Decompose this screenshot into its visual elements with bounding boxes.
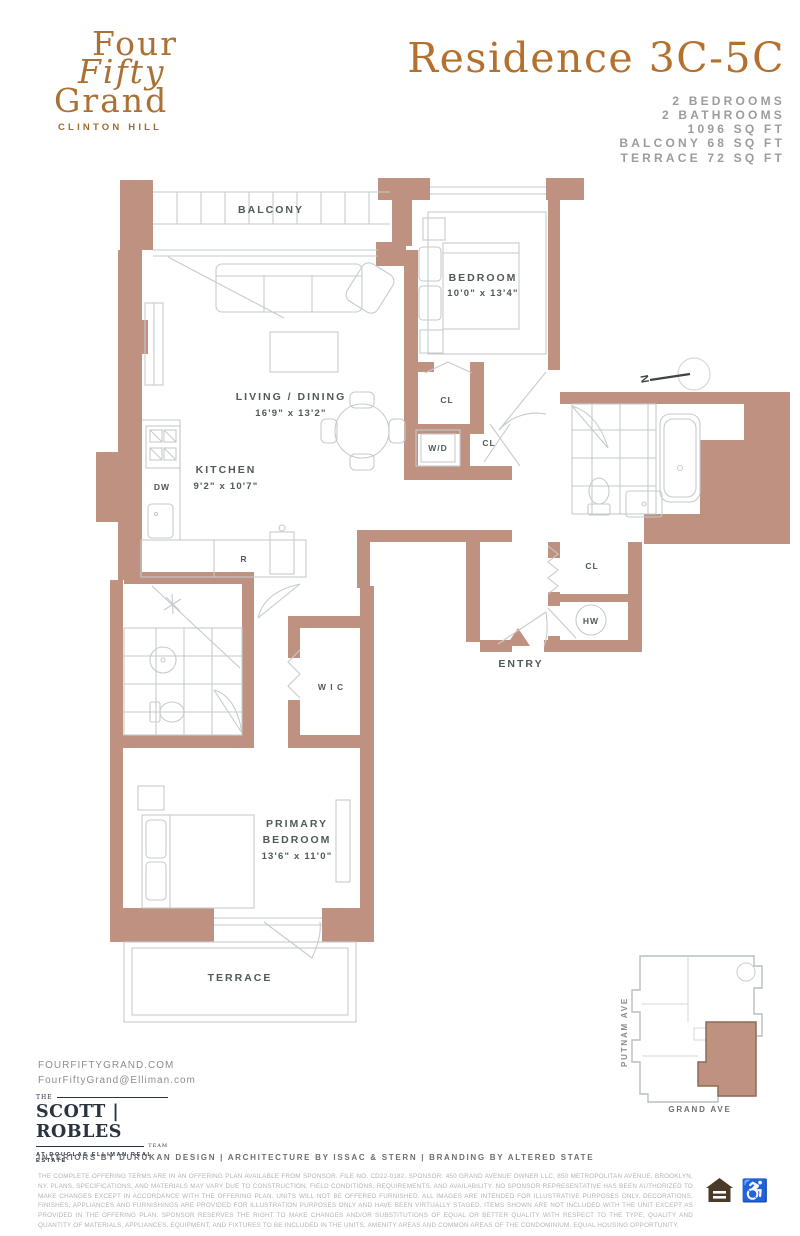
equal-housing-icon (706, 1178, 733, 1203)
label-closet-2: CL (482, 438, 495, 448)
label-primary-1: PRIMARY (266, 818, 328, 830)
credits-line: INTERIORS BY DURUKAN DESIGN | ARCHITECTU… (38, 1153, 594, 1162)
contact-block: FOURFIFTYGRAND.COM FourFiftyGrand@Ellima… (38, 1058, 196, 1088)
website-link[interactable]: FOURFIFTYGRAND.COM (38, 1060, 174, 1071)
email-link[interactable]: FourFiftyGrand@Elliman.com (38, 1075, 196, 1086)
label-kitchen: KITCHEN (196, 464, 257, 476)
accessibility-icon: ♿ (741, 1180, 768, 1202)
team-rule-bottom (36, 1146, 144, 1147)
dims-living: 16'9" x 13'2" (255, 408, 326, 419)
label-living: LIVING / DINING (236, 391, 347, 403)
team-the: THE (36, 1094, 53, 1101)
team-name: SCOTT | ROBLES (36, 1102, 168, 1142)
north-arrow: N (637, 358, 710, 390)
footer-icons: ♿ (706, 1178, 768, 1203)
floorplan-drawing: N BALCONY BEDROOM 10'0" x 13'4" LIVING /… (0, 0, 800, 1236)
label-terrace: TERRACE (208, 972, 273, 984)
label-hot-water: HW (583, 616, 599, 626)
label-balcony: BALCONY (238, 204, 304, 216)
street-putnam: PUTNAM AVE (620, 997, 629, 1067)
legal-disclaimer: THE COMPLETE OFFERING TERMS ARE IN AN OF… (38, 1172, 693, 1231)
team-rule-top (57, 1097, 168, 1098)
dims-kitchen: 9'2" x 10'7" (194, 481, 259, 492)
room-labels: BALCONY BEDROOM 10'0" x 13'4" LIVING / D… (154, 204, 599, 984)
dims-primary: 13'6" x 11'0" (262, 851, 333, 862)
team-team: TEAM (148, 1143, 168, 1149)
label-closet-1: CL (440, 395, 453, 405)
street-grand: GRAND AVE (668, 1105, 731, 1114)
label-closet-3: CL (585, 561, 598, 571)
key-plan-unit-highlight (698, 1022, 756, 1096)
dims-bedroom: 10'0" x 13'4" (447, 288, 518, 299)
key-plan: PUTNAM AVE GRAND AVE (620, 956, 762, 1114)
label-refrigerator: R (240, 554, 247, 564)
label-entry: ENTRY (498, 658, 543, 670)
label-dishwasher: DW (154, 482, 170, 492)
label-wic: W I C (318, 682, 344, 692)
label-washer-dryer: W/D (428, 443, 448, 453)
label-primary-2: BEDROOM (263, 834, 332, 846)
label-bedroom: BEDROOM (449, 272, 518, 284)
north-label: N (637, 374, 650, 384)
floorplan-flyer: Four Fifty Grand CLINTON HILL Residence … (0, 0, 800, 1236)
